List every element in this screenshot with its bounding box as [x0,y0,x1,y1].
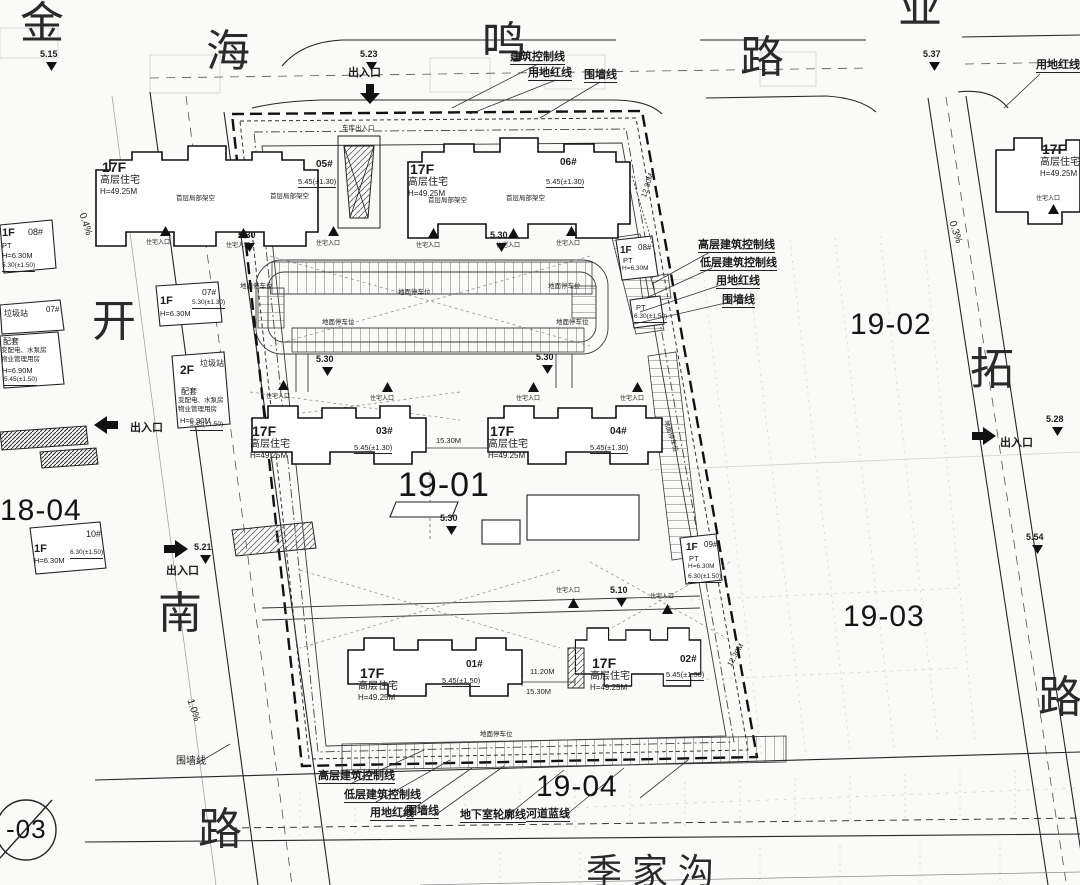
bldg02-type: 高层住宅 [590,672,630,682]
callout-wall-line-right: 围墙线 [722,295,755,308]
bldg02-height: H=49.25M [590,684,627,692]
res-entrance-label: 住宅入口 [316,241,340,247]
w1-height: H=6.30M [2,252,33,260]
bldg05-podium: 首层局部架空 [176,196,215,203]
callout-wall-line-southwest: 围墙线 [176,757,206,767]
e2-unit: 09# [704,541,717,549]
e1-height: H=6.30M [622,266,649,273]
dim-label: 11.20M [530,668,554,676]
callout-entry-west1: 出入口 [130,423,163,434]
w1-unit: 08# [28,228,43,237]
bldg02-unit: 02# [680,655,697,665]
plan-linework [0,0,1080,885]
e1-pt: PT [623,257,633,265]
spot-elevation: 5.30 [316,355,334,364]
parcel-18-04: 18-04 [0,496,82,526]
res-entrance-label: 住宅入口 [516,396,540,402]
bldg01-type: 高层住宅 [358,682,398,692]
callout-lowrise-control-line-right: 低层建筑控制线 [700,258,777,271]
parcel-19-01: 19-01 [398,468,490,502]
bldg01-elev: 5.45(±1.50) [442,677,480,687]
bldg06-type: 高层住宅 [408,178,448,188]
parcel-19-02: 19-02 [850,310,932,340]
in2f-trash: 垃圾站 [200,360,224,368]
parcel-19-03: 19-03 [843,602,925,632]
spot-elevation: 5.30 [490,231,508,240]
bldg01-floors: 17F [360,666,384,680]
w10-elev: 6.30(±1.50) [70,550,103,559]
surface-parking-label: 地面停车位 [240,284,273,291]
bldg01-unit: 01# [466,660,483,670]
e2-floors: 1F [686,543,698,553]
surface-parking-label: 地面停车位 [556,320,589,327]
garage-entry-label: 车库出入口 [342,126,375,133]
w1-floors: 1F [2,228,15,239]
bldg04-floors: 17F [490,424,514,438]
road-char-hai: 海 [206,30,250,74]
river-name: 季家沟 [586,854,724,885]
callout-redline-right: 用地红线 [716,276,760,289]
res-entrance-label: 住宅入口 [556,241,580,247]
res-entrance-label: 住宅入口 [556,588,580,594]
bldg06-floors: 17F [410,162,434,176]
bldg05-height: H=49.25M [100,188,137,196]
road-char-tuo: 拓 [970,348,1014,392]
bldg01-height: H=49.25M [358,694,395,702]
spot-elevation: 5.15 [40,50,58,59]
spot-elevation: 5.30 [238,231,256,240]
bldg04-type: 高层住宅 [488,440,528,450]
in07-unit: 07# [202,288,216,297]
res-entrance-label: 住宅入口 [266,394,290,400]
callout-wall-line-top: 围墙线 [584,70,617,83]
p1804-elev: 5.45(±1.50) [190,422,223,431]
spot-elevation: 5.37 [923,50,941,59]
w10-unit: 10# [86,530,101,539]
in2f-anc2: 物业管理用房 [178,407,217,414]
callout-entry-top: 出入口 [348,68,381,79]
callout-building-control-line-top: 建筑控制线 [510,52,565,65]
bldg04-elev: 5.45(±1.30) [590,444,628,454]
w-anc: 配套 [3,338,19,346]
res-entrance-label: 住宅入口 [370,396,394,402]
callout-entry-east: 出入口 [1000,438,1033,449]
highrise-buildings [96,138,1080,696]
road-char-lu-west: 路 [198,808,242,852]
in07-elev: 5.30(±1.30) [192,300,225,309]
spot-elevation: 5.23 [360,50,378,59]
e2-height: H=6.30M [688,564,715,571]
dim-label: 15.30M [526,688,551,696]
callout-wall-line-bottom: 围墙线 [406,806,439,819]
e1-unit: 08# [638,244,651,252]
bldg03-type: 高层住宅 [250,440,290,450]
callout-lowrise-control-line-bottom: 低层建筑控制线 [344,790,421,803]
spot-elevation: 5.30 [536,353,554,362]
res-entrance-label: 住宅入口 [496,243,520,249]
surface-parking-label: 地面停车位 [480,732,513,739]
in07-height: H=6.30M [160,310,191,318]
road-char-lu-top: 路 [740,36,784,80]
bldg06-podium: 首层局部架空 [428,198,467,205]
e1b-pt: PT [636,304,646,312]
e1b-elev: 6.30(±1.50) [634,314,667,323]
e2-elev: 6.30(±1.50) [688,574,721,583]
bldg02-elev: 5.45(±1.30) [666,671,704,681]
bldgNE-type: 高层住宅 [1040,158,1080,168]
w-trash: 垃圾站 [4,310,28,318]
callout-basement-outline-bottom: 地下室轮廓线 [460,810,526,823]
res-entrance-label: 住宅入口 [650,594,674,600]
road-char-nan: 南 [158,592,202,636]
parking-stalls [258,234,786,770]
w-anc-height: H=6.90M [2,367,33,375]
in2f-floors: 2F [180,364,194,376]
callout-redline-topright: 用地红线 [1036,60,1080,73]
in2f-anc1: 变配电、水泵房 [178,398,224,405]
bldg04-height: H=49.25M [488,452,525,460]
res-entrance-label: 住宅入口 [146,240,170,246]
res-entrance-label: 住宅入口 [416,243,440,249]
bldg06-podium2: 首层局部架空 [506,196,545,203]
road-char-jin: 金 [20,2,64,46]
w-anc1: 变配电、水泵房 [1,348,47,355]
bldg03-elev: 5.45(±1.30) [354,444,392,454]
bldg05-elev: 5.45(±1.30) [298,178,336,188]
w-anc2: 物业管理用房 [1,357,40,364]
spot-elevation: 5.54 [1026,533,1044,542]
spot-elevation: 5.28 [1046,415,1064,424]
site-plan-drawing: 金 海 鸣 路 业 开 南 路 拓 路 季家沟 19-01 19-02 19-0… [0,0,1080,885]
w10-height: H=6.30M [34,557,65,565]
dim-label: 15.30M [436,437,461,445]
bldg03-floors: 17F [252,424,276,438]
w10-floors: 1F [34,544,47,555]
bldg06-unit: 06# [560,158,577,168]
road-char-kai: 开 [92,300,136,344]
parcel-19-04: 19-04 [536,772,618,802]
callout-highrise-control-line-bottom: 高层建筑控制线 [318,771,395,784]
bldg04-unit: 04# [610,427,627,437]
w1-pt: PT [2,242,12,250]
bldg03-unit: 03# [376,427,393,437]
bldg05-podium2: 首层局部架空 [270,194,309,201]
bldg05-floors: 17F [102,160,126,174]
bldg05-type: 高层住宅 [100,176,140,186]
e2-pt: PT [689,555,699,563]
in07-floors: 1F [160,296,173,307]
bldgNE-height: H=49.25M [1040,170,1077,178]
e1-floors: 1F [620,246,632,256]
surface-parking-label: 地面停车位 [398,290,431,297]
bldg05-unit: 05# [316,160,333,170]
spot-elevation: 5.21 [194,543,212,552]
res-entrance-label: 住宅入口 [620,396,644,402]
surface-parking-label: 地面停车位 [322,320,355,327]
bldg02-floors: 17F [592,656,616,670]
w1-elev: 5.30(±1.50) [2,263,35,272]
callout-redline-top: 用地红线 [528,68,572,81]
res-entrance-label: 住宅入口 [226,243,250,249]
callout-river-blue-line-bottom: 河道蓝线 [526,809,570,822]
bldgNE-floors: 17F [1042,142,1066,156]
spot-elevation: 5.30 [440,514,458,523]
surface-parking-label: 地面停车位 [548,284,581,291]
spot-elevation: 5.10 [610,586,628,595]
parcel-03-circle: -03 [6,816,47,842]
w-trash-unit: 07# [46,306,59,314]
callout-highrise-control-line-right: 高层建筑控制线 [698,240,775,253]
callout-entry-west2: 出入口 [166,566,199,577]
w-anc-elev: 5.45(±1.50) [4,377,37,386]
in2f-anc: 配套 [181,388,197,396]
res-entrance-label: 住宅入口 [1036,196,1060,202]
road-char-ye: 业 [898,0,942,30]
road-char-lu-east: 路 [1038,676,1080,720]
bldg03-height: H=49.25M [250,452,287,460]
bldg06-elev: 5.45(±1.30) [546,178,584,188]
